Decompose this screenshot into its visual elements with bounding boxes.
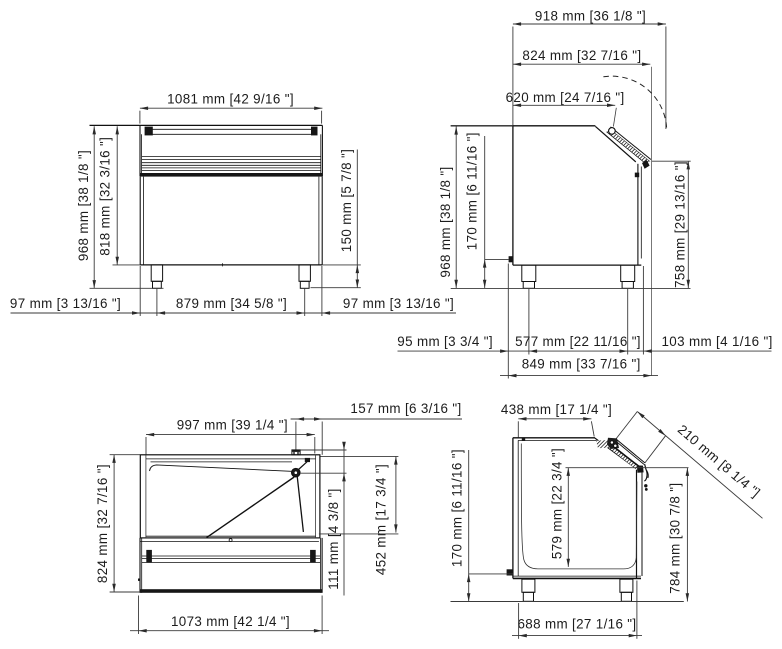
svg-text:968 mm [38 1/8 "]: 968 mm [38 1/8 "] xyxy=(438,166,453,277)
svg-text:784 mm [30 7/8 "]: 784 mm [30 7/8 "] xyxy=(667,483,682,594)
svg-text:111 mm [4 3/8 "]: 111 mm [4 3/8 "] xyxy=(326,488,341,589)
svg-text:879 mm [34 5/8 "]: 879 mm [34 5/8 "] xyxy=(176,296,287,311)
svg-text:688 mm [27 1/16 "]: 688 mm [27 1/16 "] xyxy=(518,617,637,632)
svg-text:97 mm [3 13/16 "]: 97 mm [3 13/16 "] xyxy=(343,296,454,311)
svg-text:824 mm [32 7/16 "]: 824 mm [32 7/16 "] xyxy=(522,48,641,63)
svg-text:1073 mm [42 1/4 "]: 1073 mm [42 1/4 "] xyxy=(171,614,290,629)
svg-text:1081 mm [42 9/16 "]: 1081 mm [42 9/16 "] xyxy=(167,92,294,107)
svg-text:452 mm [17 3/4 "]: 452 mm [17 3/4 "] xyxy=(374,464,389,575)
svg-text:620 mm [24 7/16 "]: 620 mm [24 7/16 "] xyxy=(506,90,625,105)
svg-text:997 mm [39 1/4 "]: 997 mm [39 1/4 "] xyxy=(177,417,288,432)
svg-text:103 mm [4 1/16 "]: 103 mm [4 1/16 "] xyxy=(662,334,773,349)
svg-text:818 mm [32 3/16 "]: 818 mm [32 3/16 "] xyxy=(98,137,113,256)
svg-text:918 mm [36 1/8 "]: 918 mm [36 1/8 "] xyxy=(535,8,646,23)
svg-text:150 mm [5 7/8 "]: 150 mm [5 7/8 "] xyxy=(339,149,354,252)
svg-text:95 mm [3 3/4 "]: 95 mm [3 3/4 "] xyxy=(397,334,493,349)
svg-text:849 mm [33 7/16 "]: 849 mm [33 7/16 "] xyxy=(522,357,641,372)
svg-text:968 mm [38 1/8 "]: 968 mm [38 1/8 "] xyxy=(76,150,91,261)
svg-text:170 mm [6 11/16 "]: 170 mm [6 11/16 "] xyxy=(465,132,480,250)
svg-text:97 mm [3 13/16 "]: 97 mm [3 13/16 "] xyxy=(10,296,121,311)
svg-text:157 mm [6 3/16 "]: 157 mm [6 3/16 "] xyxy=(350,401,461,416)
svg-text:170 mm [6 11/16 "]: 170 mm [6 11/16 "] xyxy=(450,449,465,567)
svg-text:758 mm [29 13/16 "]: 758 mm [29 13/16 "] xyxy=(673,161,688,288)
svg-text:824 mm [32 7/16 "]: 824 mm [32 7/16 "] xyxy=(95,464,110,583)
svg-text:579 mm [22 3/4 "]: 579 mm [22 3/4 "] xyxy=(549,448,564,559)
svg-text:438 mm [17 1/4 "]: 438 mm [17 1/4 "] xyxy=(501,402,612,417)
svg-text:577 mm [22 11/16 "]: 577 mm [22 11/16 "] xyxy=(515,334,641,349)
